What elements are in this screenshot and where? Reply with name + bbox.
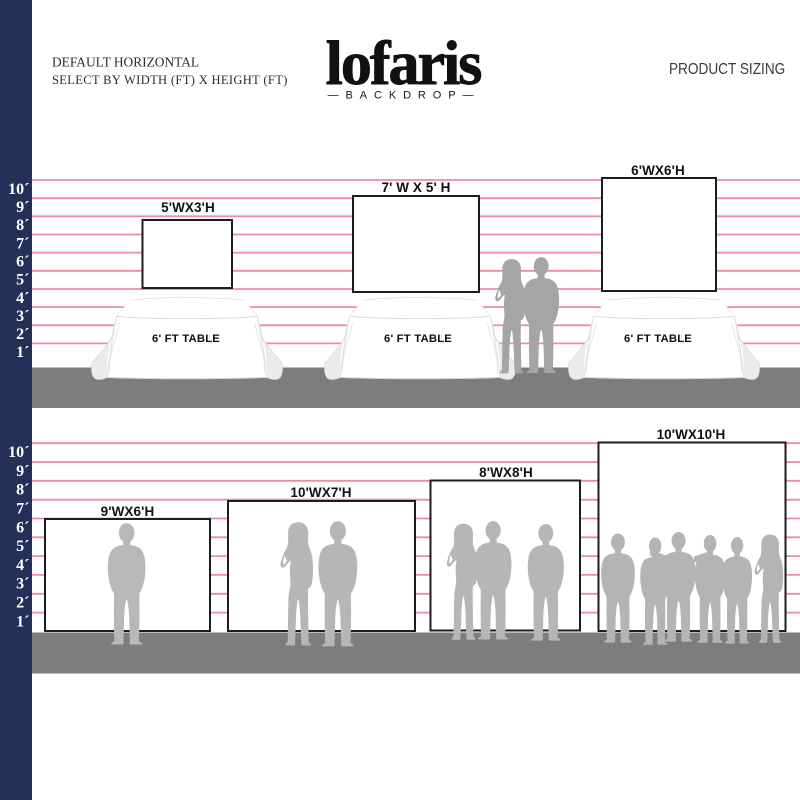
svg-text:SELECT BY WIDTH (FT) X HEIGHT: SELECT BY WIDTH (FT) X HEIGHT (FT) — [52, 73, 288, 87]
svg-text:lofaris: lofaris — [326, 30, 482, 98]
svg-text:4´: 4´ — [16, 290, 29, 307]
svg-text:2´: 2´ — [16, 326, 29, 343]
svg-text:6´: 6´ — [16, 519, 29, 536]
svg-text:10'WX10'H: 10'WX10'H — [657, 427, 726, 442]
svg-text:8´: 8´ — [16, 482, 29, 499]
svg-text:10´: 10´ — [8, 181, 29, 198]
svg-text:5´: 5´ — [16, 272, 29, 289]
svg-text:10´: 10´ — [8, 444, 29, 461]
svg-text:9'WX6'H: 9'WX6'H — [101, 504, 155, 519]
svg-text:7´: 7´ — [16, 235, 29, 252]
svg-text:—BACKDROP—: —BACKDROP— — [328, 90, 481, 102]
svg-text:PRODUCT SIZING: PRODUCT SIZING — [669, 61, 785, 78]
svg-text:6'WX6'H: 6'WX6'H — [631, 163, 685, 178]
svg-text:8'WX8'H: 8'WX8'H — [479, 465, 533, 480]
svg-text:6' FT TABLE: 6' FT TABLE — [152, 333, 220, 345]
svg-text:7´: 7´ — [16, 501, 29, 518]
svg-text:6´: 6´ — [16, 253, 29, 270]
svg-text:4´: 4´ — [16, 557, 29, 574]
svg-text:1´: 1´ — [16, 613, 29, 630]
svg-text:6' FT TABLE: 6' FT TABLE — [384, 333, 452, 345]
svg-text:7' W X 5' H: 7' W X 5' H — [381, 180, 450, 195]
svg-text:DEFAULT HORIZONTAL: DEFAULT HORIZONTAL — [52, 55, 199, 70]
svg-text:5'WX3'H: 5'WX3'H — [161, 200, 215, 215]
svg-text:2´: 2´ — [16, 595, 29, 612]
svg-text:9´: 9´ — [16, 463, 29, 480]
svg-text:10'WX7'H: 10'WX7'H — [290, 485, 351, 500]
svg-text:8´: 8´ — [16, 217, 29, 234]
svg-text:5´: 5´ — [16, 538, 29, 555]
svg-text:3´: 3´ — [16, 308, 29, 325]
svg-text:3´: 3´ — [16, 576, 29, 593]
svg-text:9´: 9´ — [16, 199, 29, 216]
svg-text:1´: 1´ — [16, 344, 29, 361]
svg-text:6' FT TABLE: 6' FT TABLE — [624, 333, 692, 345]
